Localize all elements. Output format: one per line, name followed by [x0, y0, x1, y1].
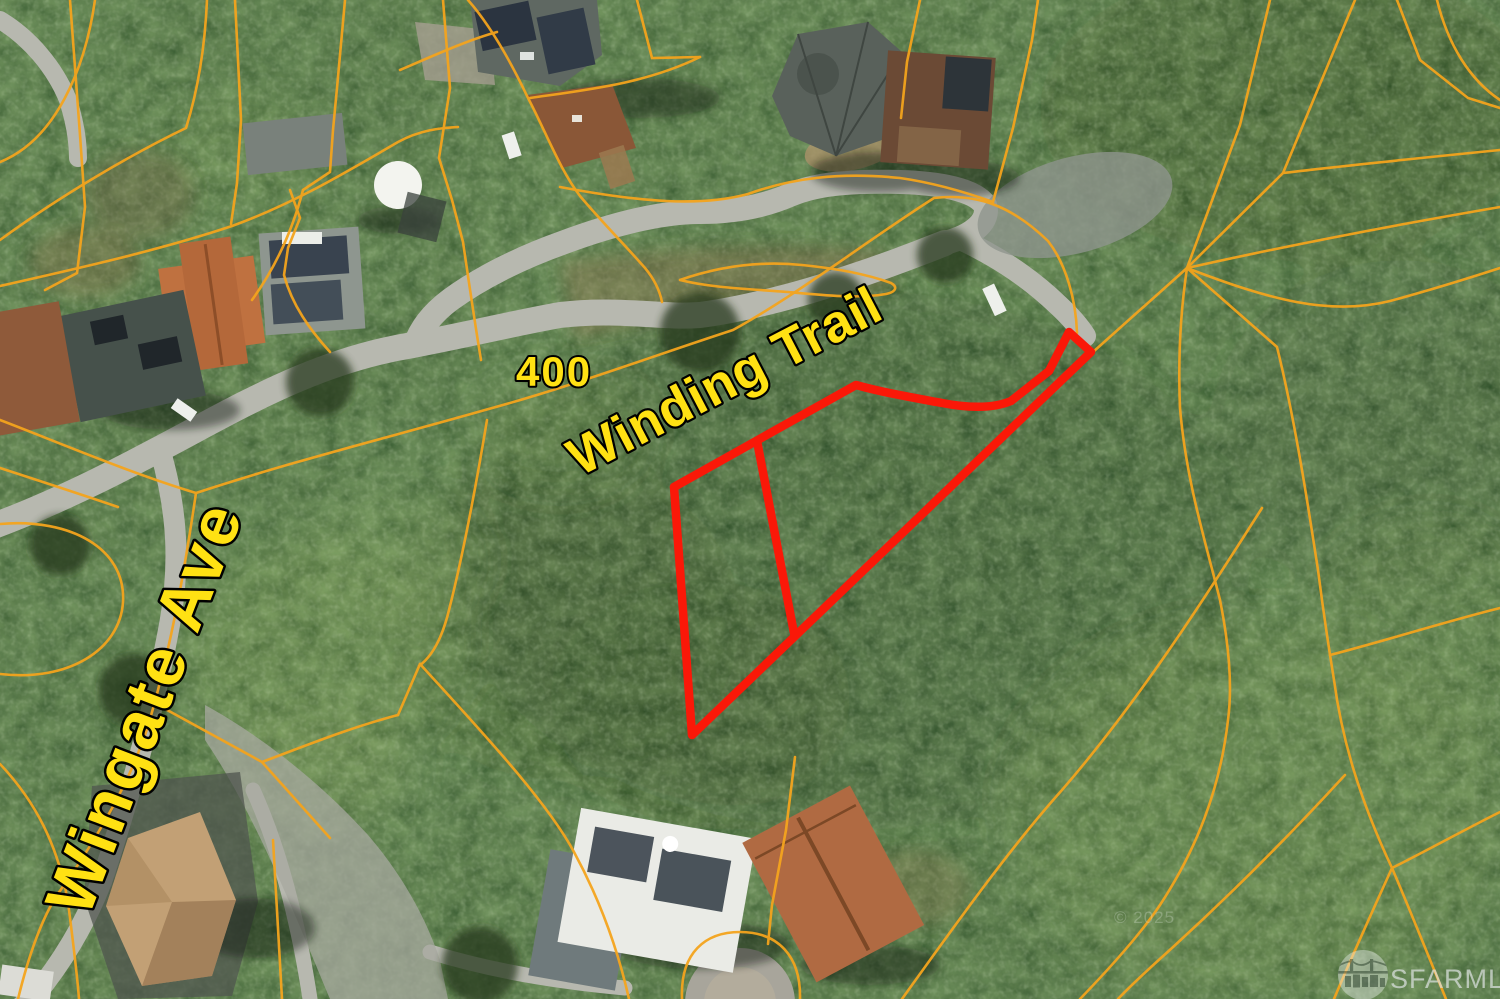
city-building — [1362, 977, 1368, 987]
logo-circle — [1338, 950, 1388, 999]
aerial-map: 400 Winding Trail Wingate Ave © 2025 SFA… — [0, 0, 1500, 999]
city-building — [1370, 975, 1378, 987]
mansion-turret — [797, 53, 839, 95]
map-canvas: 400 Winding Trail Wingate Ave © 2025 SFA… — [0, 0, 1500, 999]
bridge-deck — [1338, 971, 1388, 974]
solar-panel-array — [942, 56, 992, 111]
city-building — [1345, 976, 1351, 987]
tree — [286, 348, 354, 416]
sfarmls-logo-icon — [1338, 950, 1388, 999]
solar-panel-array — [271, 280, 344, 325]
roof-vent — [520, 52, 534, 60]
deck — [897, 126, 961, 166]
imagery-copyright: © 2025 — [1114, 908, 1175, 927]
block-number-label: 400 — [516, 348, 592, 395]
tree — [917, 227, 973, 283]
watermark-brand-text: SFARMLS — [1390, 964, 1500, 994]
roof-vent — [572, 115, 582, 122]
city-building — [1380, 978, 1385, 987]
dirt-patch — [85, 150, 195, 240]
city-building — [1353, 975, 1360, 988]
